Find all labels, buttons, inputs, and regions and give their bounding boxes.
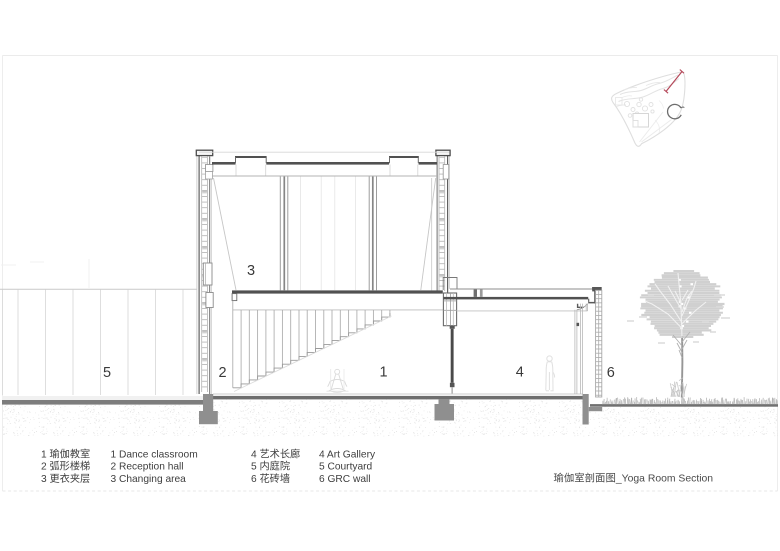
svg-text:2 弧形楼梯: 2 弧形楼梯 [41,460,90,473]
svg-text:3 Changing area: 3 Changing area [111,474,187,485]
svg-text:6: 6 [607,365,615,381]
svg-text:5 Courtyard: 5 Courtyard [319,462,373,473]
svg-text:3 更衣夹层: 3 更衣夹层 [41,472,90,485]
svg-text:1: 1 [380,365,388,381]
svg-text:4 艺术长廊: 4 艺术长廊 [251,447,300,460]
svg-text:1 瑜伽教室: 1 瑜伽教室 [41,447,90,460]
svg-text:4: 4 [516,365,524,381]
svg-text:6 GRC wall: 6 GRC wall [319,474,371,485]
svg-text:3: 3 [247,263,255,279]
svg-text:2: 2 [219,365,227,381]
svg-text:4 Art Gallery: 4 Art Gallery [319,449,376,460]
svg-text:2 Reception hall: 2 Reception hall [111,462,184,473]
svg-text:5 内庭院: 5 内庭院 [251,460,290,473]
svg-text:1 Dance classroom: 1 Dance classroom [111,449,198,460]
svg-text:瑜伽室剖面图_Yoga Room Section: 瑜伽室剖面图_Yoga Room Section [554,472,714,485]
svg-text:5: 5 [103,365,111,381]
svg-text:6 花砖墙: 6 花砖墙 [251,472,290,485]
